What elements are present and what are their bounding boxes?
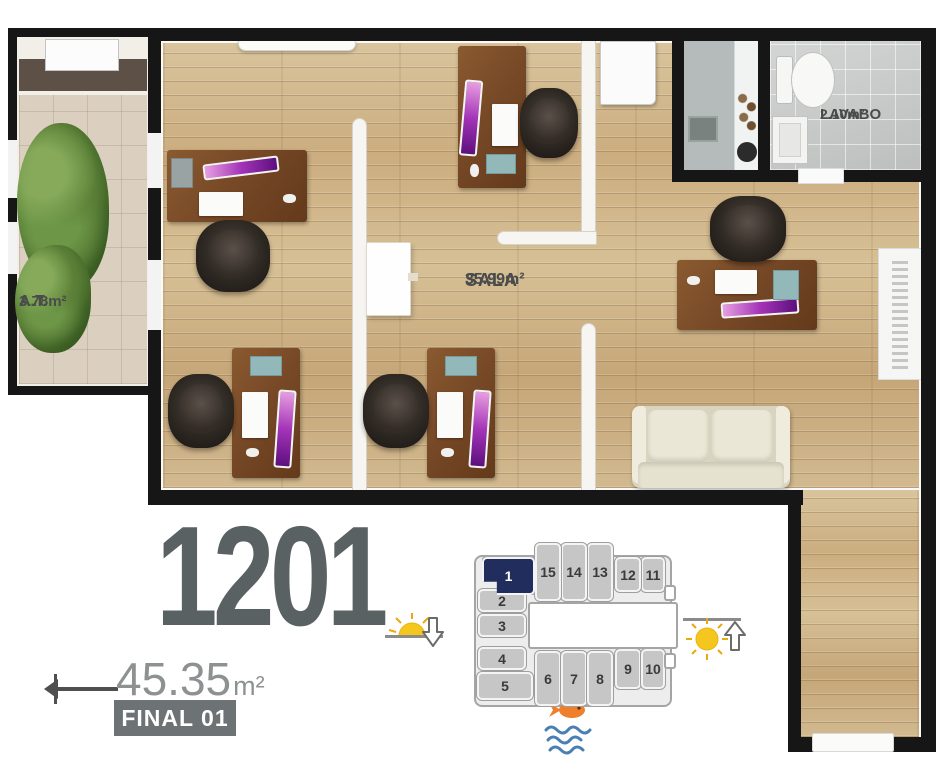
mouse <box>441 448 454 457</box>
keyplan-unit-13: 13 <box>587 543 613 601</box>
monitor-icon <box>721 297 800 318</box>
wall-ac-panel <box>878 248 922 380</box>
keyplan-unit-10: 10 <box>641 649 665 689</box>
bathroom-sink <box>772 116 808 164</box>
kettle <box>737 142 757 162</box>
floor-plan-page: A.T. 3.78m² LAVABO 2.10m² <box>0 0 944 768</box>
wall <box>672 38 684 174</box>
unit-number: 1201 <box>156 506 384 648</box>
paper <box>242 392 268 438</box>
final-badge: FINAL 01 <box>114 700 236 736</box>
keyplan-unit-14: 14 <box>561 543 587 601</box>
window <box>8 222 17 274</box>
keyplan-unit-4: 4 <box>478 647 526 670</box>
office-chair <box>520 88 578 158</box>
at-tile-floor: A.T. 3.78m² <box>19 95 147 384</box>
sun-with-up-arrow-icon <box>681 608 753 662</box>
office-chair <box>196 220 270 292</box>
kitchen-sink <box>688 116 718 142</box>
entry-door <box>812 733 894 752</box>
sun-with-down-arrow-icon <box>383 606 455 652</box>
wood-floor-corridor <box>794 490 924 742</box>
partition-wall <box>581 36 596 244</box>
keyplan-unit-7: 7 <box>561 651 587 706</box>
desk <box>458 46 526 188</box>
kitchenette-floor <box>684 40 760 172</box>
desk-phone <box>171 158 193 188</box>
desk <box>232 348 300 478</box>
sofa-cushion <box>712 410 772 462</box>
room-at-interior: A.T. 3.78m² <box>17 37 149 386</box>
window <box>148 133 161 188</box>
mouse <box>246 448 259 457</box>
coffee-cups <box>736 90 758 132</box>
monitor-icon <box>459 79 484 156</box>
desk-accessory <box>486 154 516 174</box>
keyplan-unit-15: 15 <box>535 543 561 601</box>
keyplan-unit-11: 11 <box>641 557 665 592</box>
paper <box>437 392 463 438</box>
window <box>8 140 17 198</box>
paper <box>715 270 757 294</box>
mouse <box>687 276 700 285</box>
office-chair <box>168 374 234 448</box>
sofa-backrest <box>638 462 784 488</box>
monitor-icon <box>273 389 296 468</box>
monitor-icon <box>468 389 491 468</box>
keyplan-unit-12: 12 <box>615 557 641 592</box>
paper <box>492 104 518 146</box>
sofa-cushion <box>648 410 708 462</box>
mouse <box>283 194 296 203</box>
door <box>366 242 411 316</box>
office-chair <box>710 196 786 262</box>
ac-condenser-unit <box>45 39 119 71</box>
monitor-icon <box>202 155 279 180</box>
cabinet <box>600 41 656 105</box>
room-area: 2.10m² <box>820 106 864 123</box>
paper <box>199 192 243 216</box>
desk-accessory <box>250 356 282 376</box>
wall <box>788 490 801 750</box>
wall <box>758 38 770 174</box>
office-chair <box>363 374 429 448</box>
area-value: 45.35 <box>116 653 231 705</box>
keyplan: 1 2 3 4 5 6 7 8 9 10 11 12 13 14 15 <box>468 533 682 713</box>
desk <box>167 150 307 222</box>
keyplan-unit-6: 6 <box>535 651 561 706</box>
room-at: A.T. 3.78m² <box>8 28 158 395</box>
partition-wall <box>352 118 367 492</box>
keyplan-unit-9: 9 <box>615 649 641 689</box>
keyplan-notch <box>664 585 676 601</box>
partition-wall <box>581 323 596 492</box>
wall <box>148 28 936 41</box>
room-area: 35.99m² <box>465 270 525 289</box>
area-unit: m² <box>233 671 264 701</box>
partition-wall <box>497 231 597 245</box>
keyplan-notch <box>664 653 676 669</box>
wall <box>672 170 921 182</box>
room-area: 3.78m² <box>19 293 67 310</box>
desk <box>427 348 495 478</box>
window <box>148 260 161 330</box>
mouse <box>470 164 479 177</box>
desk <box>677 260 817 330</box>
toilet <box>791 52 835 108</box>
door <box>798 168 844 184</box>
desk-accessory <box>773 270 799 300</box>
area-label: 45.35m² <box>116 652 265 706</box>
wall <box>921 28 936 750</box>
sofa <box>632 406 790 488</box>
keyplan-unit-5: 5 <box>477 672 533 700</box>
keyplan-unit-8: 8 <box>587 651 613 706</box>
keyplan-unit-3: 3 <box>478 614 526 637</box>
desk-accessory <box>445 356 477 376</box>
keyplan-core <box>528 602 678 649</box>
dimension-arrow-icon <box>40 668 118 708</box>
